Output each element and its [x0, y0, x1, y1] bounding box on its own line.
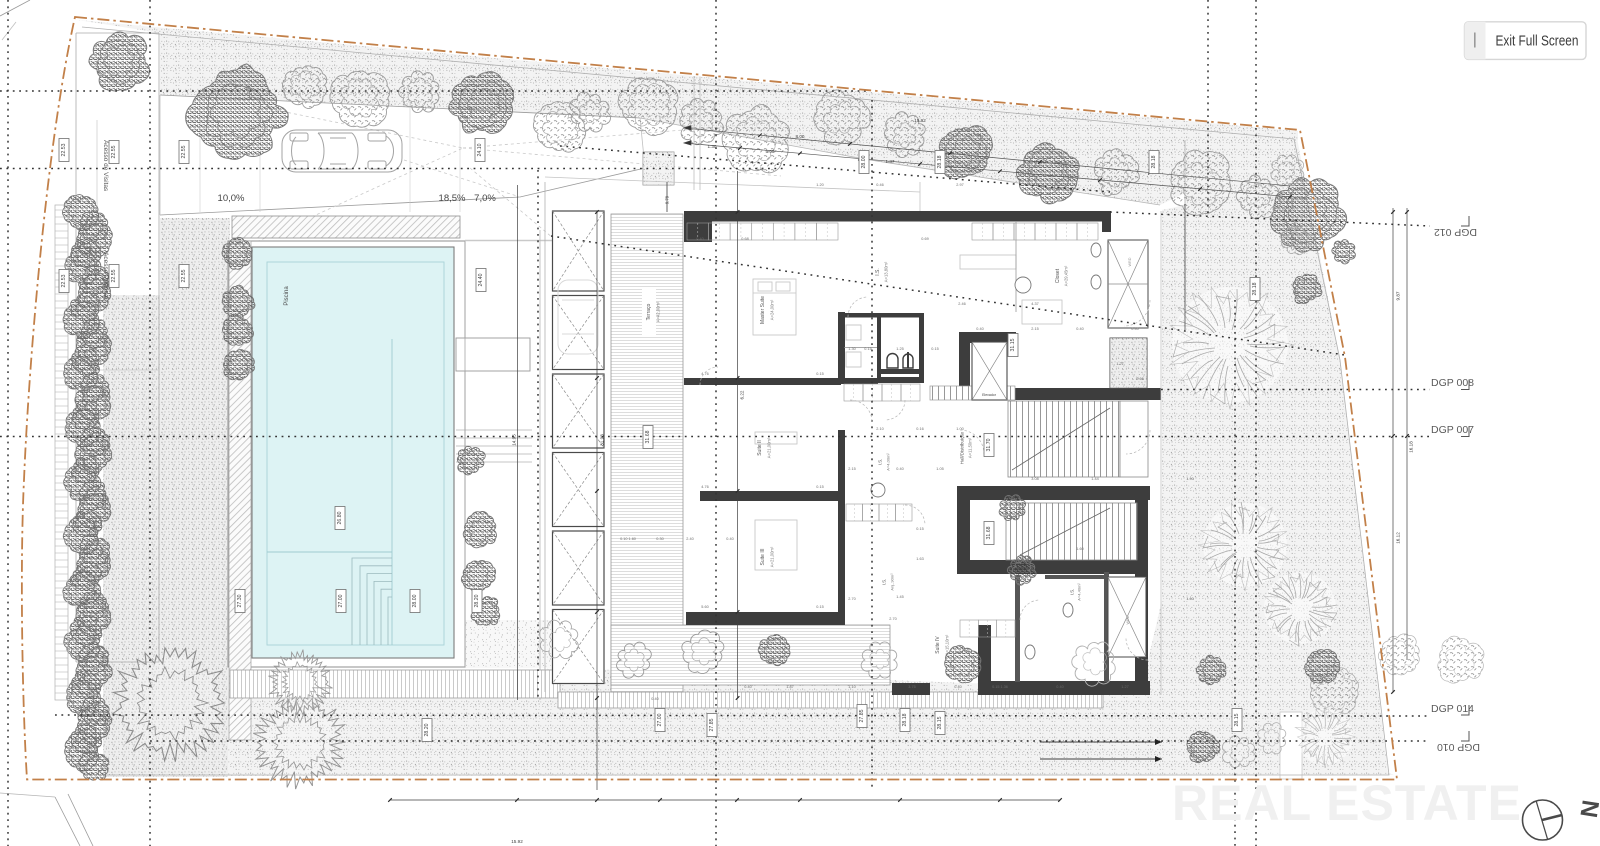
svg-text:A=4,00m²: A=4,00m² — [886, 453, 891, 471]
svg-text:2.70: 2.70 — [848, 597, 855, 601]
svg-text:28.20: 28.20 — [424, 723, 430, 736]
svg-text:31.68: 31.68 — [645, 430, 651, 443]
svg-text:2.46: 2.46 — [958, 302, 965, 306]
svg-text:1.44: 1.44 — [1091, 477, 1098, 481]
svg-text:A=11,50m²: A=11,50m² — [968, 437, 973, 458]
svg-text:A=21,00m²: A=21,00m² — [767, 437, 772, 458]
svg-text:27.00: 27.00 — [657, 713, 663, 726]
svg-text:6.22: 6.22 — [740, 390, 745, 399]
svg-text:WRD: WRD — [1128, 257, 1132, 266]
svg-text:22.55: 22.55 — [181, 145, 187, 158]
svg-text:1.25: 1.25 — [896, 347, 903, 351]
svg-text:6.27: 6.27 — [1026, 567, 1033, 571]
svg-text:28.20: 28.20 — [474, 594, 480, 607]
svg-text:1.10: 1.10 — [848, 685, 855, 689]
svg-text:18,5%: 18,5% — [439, 193, 466, 204]
svg-text:5.60: 5.60 — [701, 605, 708, 609]
svg-text:0.40: 0.40 — [1056, 685, 1063, 689]
svg-text:0.40: 0.40 — [976, 327, 983, 331]
svg-text:DGP 010: DGP 010 — [1437, 741, 1480, 753]
svg-text:0.40: 0.40 — [1076, 327, 1083, 331]
svg-text:I.S.: I.S. — [882, 579, 887, 586]
svg-text:0.40: 0.40 — [696, 237, 703, 241]
svg-text:REAL ESTATE: REAL ESTATE — [1172, 775, 1522, 831]
svg-text:Master Suite: Master Suite — [760, 296, 766, 324]
svg-text:1.60: 1.60 — [1186, 597, 1193, 601]
svg-text:Suite III: Suite III — [760, 549, 766, 566]
svg-text:1.87: 1.87 — [786, 685, 793, 689]
svg-text:0.16: 0.16 — [916, 427, 923, 431]
svg-text:31.68: 31.68 — [986, 526, 992, 539]
svg-text:0.40: 0.40 — [651, 697, 658, 701]
svg-text:0.40: 0.40 — [1131, 327, 1138, 331]
svg-text:2.10: 2.10 — [876, 427, 883, 431]
svg-text:15.92: 15.92 — [511, 839, 523, 844]
svg-text:16.12: 16.12 — [1396, 532, 1401, 544]
svg-text:8.00: 8.00 — [796, 134, 805, 139]
svg-text:Anj.,90m²: Anj.,90m² — [890, 573, 895, 591]
svg-text:0.15: 0.15 — [816, 372, 823, 376]
svg-text:22.55: 22.55 — [181, 269, 187, 282]
svg-text:0.68: 0.68 — [741, 237, 748, 241]
svg-text:27.00: 27.00 — [338, 594, 344, 607]
svg-text:N: N — [1574, 798, 1600, 819]
svg-text:22.53: 22.53 — [61, 143, 67, 156]
svg-text:26.80: 26.80 — [337, 511, 343, 524]
svg-text:9.87: 9.87 — [1396, 291, 1401, 300]
svg-text:24.10: 24.10 — [477, 143, 483, 156]
svg-text:1.45: 1.45 — [896, 595, 903, 599]
svg-text:2.60: 2.60 — [1136, 377, 1143, 381]
svg-text:28.00: 28.00 — [412, 594, 418, 607]
svg-text:28.15: 28.15 — [1234, 713, 1240, 726]
svg-text:28.18: 28.18 — [937, 155, 943, 168]
svg-text:DGP 007: DGP 007 — [1431, 424, 1474, 436]
svg-text:0.15: 0.15 — [816, 605, 823, 609]
svg-text:1.30: 1.30 — [708, 144, 717, 149]
svg-text:31.70: 31.70 — [986, 438, 992, 451]
svg-text:Suite II: Suite II — [757, 440, 763, 456]
svg-text:1.27: 1.27 — [1116, 362, 1123, 366]
svg-text:0.10 1.60: 0.10 1.60 — [620, 537, 636, 541]
svg-text:1.27: 1.27 — [1056, 183, 1063, 187]
svg-text:Acesso de Visitas: Acesso de Visitas — [102, 140, 109, 192]
svg-text:0.15: 0.15 — [931, 347, 938, 351]
svg-text:15.92: 15.92 — [914, 118, 926, 123]
svg-text:4.37: 4.37 — [1031, 302, 1038, 306]
svg-text:Elevador: Elevador — [982, 393, 997, 397]
svg-text:A=29,45m²: A=29,45m² — [1064, 265, 1069, 286]
svg-text:28.15: 28.15 — [937, 716, 943, 729]
svg-text:1.90: 1.90 — [1186, 477, 1193, 481]
svg-text:0.15: 0.15 — [816, 485, 823, 489]
svg-text:Suite IV: Suite IV — [935, 636, 941, 654]
svg-text:Piscina: Piscina — [284, 286, 290, 306]
svg-text:1.30: 1.30 — [848, 347, 855, 351]
svg-text:0.69: 0.69 — [921, 237, 928, 241]
svg-text:27.85: 27.85 — [709, 718, 715, 731]
svg-text:WRD: WRD — [1126, 615, 1130, 624]
svg-text:1.27: 1.27 — [1121, 685, 1128, 689]
svg-text:A=13,80m²: A=13,80m² — [884, 261, 889, 282]
svg-text:31.93: 31.93 — [600, 434, 605, 446]
svg-text:0.15 1.36: 0.15 1.36 — [992, 685, 1008, 689]
svg-text:Exit Full Screen: Exit Full Screen — [1496, 34, 1579, 50]
svg-text:I.S.: I.S. — [875, 268, 881, 276]
svg-text:10,0%: 10,0% — [218, 193, 245, 204]
svg-text:28.18: 28.18 — [1151, 155, 1157, 168]
svg-text:DGP 012: DGP 012 — [1434, 226, 1477, 238]
svg-text:28.00: 28.00 — [861, 155, 867, 168]
svg-text:14.95: 14.95 — [512, 434, 517, 446]
svg-text:I.S.: I.S. — [878, 459, 883, 466]
svg-text:1.05: 1.05 — [936, 467, 943, 471]
svg-text:0.40: 0.40 — [726, 537, 733, 541]
svg-text:16.18: 16.18 — [1409, 441, 1414, 453]
svg-text:28.18: 28.18 — [1252, 282, 1258, 295]
svg-text:3.75: 3.75 — [908, 685, 915, 689]
svg-text:1.60: 1.60 — [1076, 547, 1083, 551]
svg-text:DGP 008: DGP 008 — [1431, 377, 1474, 389]
svg-text:Acesso Pedonal: Acesso Pedonal — [102, 252, 109, 300]
svg-text:22.55: 22.55 — [111, 145, 117, 158]
svg-text:31.15: 31.15 — [1010, 338, 1016, 351]
svg-text:Closet: Closet — [1055, 268, 1061, 283]
svg-text:22.53: 22.53 — [61, 274, 67, 287]
svg-text:4.76: 4.76 — [701, 485, 708, 489]
svg-text:28.18: 28.18 — [902, 713, 908, 726]
svg-text:0.46: 0.46 — [876, 183, 883, 187]
svg-text:2.70: 2.70 — [889, 617, 896, 621]
svg-text:1.00: 1.00 — [956, 427, 963, 431]
svg-text:0.40: 0.40 — [744, 685, 751, 689]
svg-text:2.15: 2.15 — [1031, 327, 1038, 331]
svg-text:1.63: 1.63 — [916, 557, 923, 561]
svg-text:A=42,00m²: A=42,00m² — [656, 301, 661, 322]
svg-text:0.30: 0.30 — [656, 537, 663, 541]
svg-text:5.05: 5.05 — [766, 149, 775, 154]
svg-text:0.15: 0.15 — [864, 347, 871, 351]
svg-text:A=24,00m²: A=24,00m² — [770, 299, 775, 320]
svg-text:1.20: 1.20 — [816, 183, 823, 187]
svg-text:2.15: 2.15 — [848, 467, 855, 471]
svg-text:Terraço: Terraço — [646, 303, 652, 320]
svg-text:3.16: 3.16 — [756, 167, 763, 171]
svg-text:24.40: 24.40 — [478, 273, 484, 286]
svg-text:0.40: 0.40 — [896, 467, 903, 471]
svg-text:3.08: 3.08 — [1031, 477, 1038, 481]
svg-text:22.55: 22.55 — [111, 269, 117, 282]
svg-text:1.37: 1.37 — [886, 159, 895, 164]
svg-text:I.S.: I.S. — [1070, 589, 1075, 596]
svg-text:0.40: 0.40 — [954, 685, 961, 689]
svg-text:A=4,40m²: A=4,40m² — [1077, 583, 1082, 601]
svg-text:27.30: 27.30 — [237, 594, 243, 607]
svg-text:9.79: 9.79 — [665, 195, 670, 204]
svg-text:2.97: 2.97 — [956, 183, 963, 187]
svg-text:A=21,00m²: A=21,00m² — [770, 546, 775, 567]
svg-text:27.85: 27.85 — [859, 709, 865, 722]
svg-text:0.15: 0.15 — [916, 527, 923, 531]
svg-text:DGP 014: DGP 014 — [1431, 703, 1474, 715]
svg-text:7,0%: 7,0% — [474, 193, 496, 204]
svg-text:2.40: 2.40 — [686, 537, 693, 541]
